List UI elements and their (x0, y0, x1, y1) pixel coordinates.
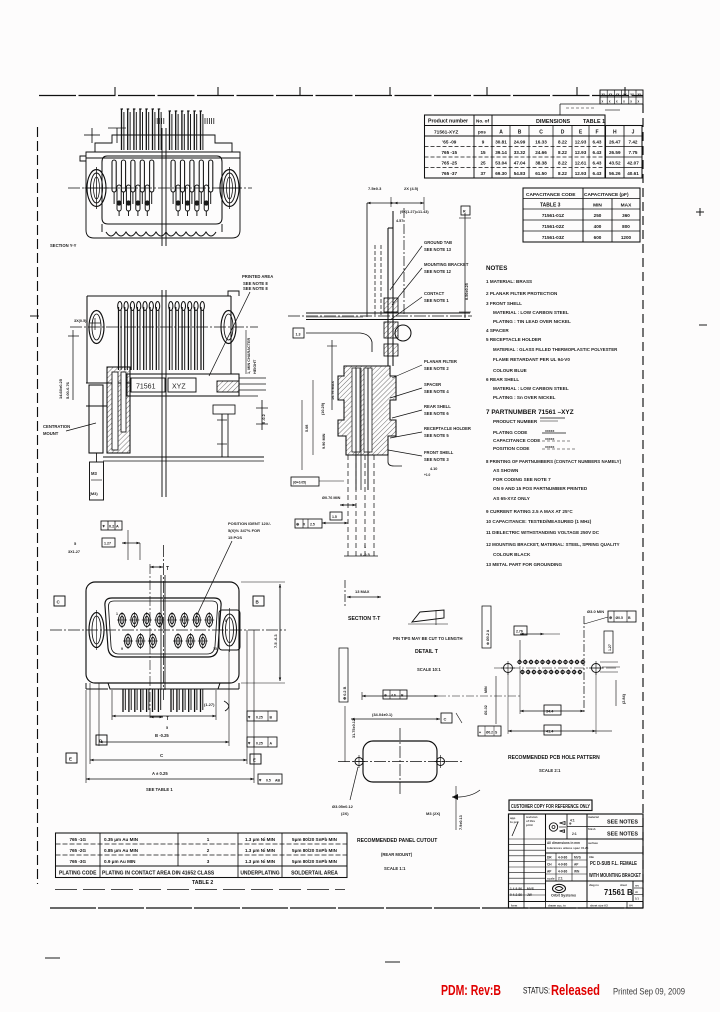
svg-text:MOUNT: MOUNT (43, 431, 59, 436)
svg-text:SEE NOTE 4: SEE NOTE 4 (424, 389, 449, 394)
svg-text:HEIGHT: HEIGHT (253, 359, 257, 374)
svg-text:Ø0.2: Ø0.2 (486, 731, 493, 735)
svg-text:2: 2 (207, 848, 210, 853)
svg-text:2.76: 2.76 (516, 630, 523, 634)
svg-text:26.47: 26.47 (609, 140, 621, 145)
svg-text:1200: 1200 (621, 235, 632, 240)
svg-text:CH: CH (547, 863, 552, 867)
svg-text:CAPACITANCE CODE: CAPACITANCE CODE (526, 192, 576, 198)
svg-text:9.90 MIN: 9.90 MIN (322, 433, 326, 449)
svg-text:E: E (579, 130, 583, 136)
svg-text:rev: rev (635, 884, 639, 888)
svg-text:12.61: 12.61 (575, 161, 587, 166)
svg-text:69.30: 69.30 (495, 171, 507, 176)
svg-text:33.32: 33.32 (514, 150, 526, 155)
svg-text:RECOMMENDED PCB HOLE PATTERN: RECOMMENDED PCB HOLE PATTERN (508, 755, 600, 761)
svg-text:scale: scale (547, 877, 555, 881)
svg-text:47.04: 47.04 (514, 161, 526, 166)
svg-text:xx: xx (602, 93, 606, 97)
svg-text:1, MIN CHARACTER: 1, MIN CHARACTER (247, 337, 251, 374)
svg-text:3X(0.5): 3X(0.5) (74, 319, 87, 323)
svg-text:PLATING : Sn OVER NICKEL: PLATING : Sn OVER NICKEL (493, 395, 556, 400)
svg-text:B: B (401, 694, 404, 698)
svg-text:10 CAPACITANCE: TESTED/MEASURE: 10 CAPACITANCE: TESTED/MEASURED (1 MHz) (486, 519, 592, 524)
svg-text:8 PRINTING OF PARTNUMBERS (CO: 8 PRINTING OF PARTNUMBERS (CONTACT NUMBE… (486, 459, 622, 464)
svg-text:41.4: 41.4 (546, 730, 554, 734)
svg-text:A ± 0.25: A ± 0.25 (152, 771, 168, 776)
svg-text:SEE NOTES: SEE NOTES (607, 832, 639, 838)
svg-text:0.9 μm Au MIN: 0.9 μm Au MIN (104, 859, 136, 864)
svg-text:4.10: 4.10 (430, 467, 437, 471)
svg-text:pos: pos (478, 130, 486, 135)
svg-text:61.50: 61.50 (535, 171, 547, 176)
svg-text:SPACER: SPACER (424, 382, 441, 387)
svg-text:COLOUR BLUE: COLOUR BLUE (493, 368, 527, 373)
svg-text:SECTION T-T: SECTION T-T (348, 616, 381, 622)
svg-text:SEE NOTE 8: SEE NOTE 8 (243, 281, 268, 286)
svg-text:All dimensions in mm: All dimensions in mm (547, 841, 580, 845)
svg-text:24.99: 24.99 (514, 140, 526, 145)
svg-text:A: A (116, 525, 119, 529)
svg-text:B: B (628, 616, 631, 620)
svg-text:sheet: sheet (620, 883, 627, 887)
svg-text:B: B (270, 716, 273, 720)
svg-text:1 MATERIAL: BRASS: 1 MATERIAL: BRASS (486, 279, 532, 284)
svg-text:SEE NOTES: SEE NOTES (607, 820, 639, 826)
svg-text:250: 250 (594, 213, 602, 218)
svg-text:xx: xx (609, 93, 613, 97)
svg-text:31.75±0.12: 31.75±0.12 (352, 719, 356, 738)
svg-text:FRONT SHELL: FRONT SHELL (424, 450, 454, 455)
svg-text:xx: xx (630, 93, 634, 97)
svg-text:(34.04±0.1): (34.04±0.1) (372, 712, 393, 717)
svg-text:6.43: 6.43 (593, 150, 602, 155)
svg-text:SCALE 1:1: SCALE 1:1 (384, 866, 406, 871)
svg-text:xxxxx: xxxxx (545, 437, 555, 441)
svg-text:sheet size A3: sheet size A3 (590, 904, 608, 908)
svg-text:RECOMMENDED PANEL CUTOUT: RECOMMENDED PANEL CUTOUT (357, 838, 437, 844)
svg-text:12.93: 12.93 (575, 171, 587, 176)
svg-text:5: 5 (74, 541, 77, 546)
svg-text:MATERIAL : GLASS FILLED THERMO: MATERIAL : GLASS FILLED THERMOPLASTIC PO… (493, 347, 618, 352)
svg-text:POSITION CODE: POSITION CODE (493, 446, 530, 451)
svg-text:0.85 μm Au MIN: 0.85 μm Au MIN (104, 848, 139, 853)
svg-text:x: x (616, 100, 618, 104)
svg-text:MVS: MVS (527, 887, 534, 891)
svg-text:⌖: ⌖ (258, 778, 262, 783)
svg-text:765 -2G: 765 -2G (69, 848, 86, 853)
svg-text:12.93: 12.93 (575, 140, 587, 145)
svg-text:4 SPACER: 4 SPACER (486, 328, 509, 333)
svg-text:CAPACITANCE (pF): CAPACITANCE (pF) (584, 192, 629, 198)
svg-text:M3 (2X): M3 (2X) (426, 811, 441, 816)
svg-text:A4: A4 (629, 904, 633, 908)
svg-text:13 MAX: 13 MAX (355, 589, 370, 594)
svg-text:1.27: 1.27 (608, 644, 612, 651)
svg-text:NOTES: NOTES (486, 265, 507, 272)
svg-text:B: B (518, 130, 522, 136)
svg-text:600: 600 (594, 235, 602, 240)
svg-text:6.43: 6.43 (593, 161, 602, 166)
svg-text:SEE NOTE 2: SEE NOTE 2 (424, 366, 449, 371)
svg-text:26.59: 26.59 (609, 150, 621, 155)
svg-text:13 METAL PART FOR GROUNDING: 13 METAL PART FOR GROUNDING (486, 562, 562, 567)
svg-text:5: 5 (166, 726, 168, 730)
svg-text:print: print (526, 823, 533, 827)
svg-text:C: C (57, 600, 61, 605)
svg-text:A: A (499, 130, 503, 136)
svg-text:MATERIAL : LOW CARBON STEEL: MATERIAL : LOW CARBON STEEL (493, 310, 569, 315)
svg-text:30.81: 30.81 (495, 140, 507, 145)
svg-text:14.60±0.25: 14.60±0.25 (58, 378, 63, 399)
svg-text:CAPACITANCE CODE: CAPACITANCE CODE (493, 438, 540, 443)
svg-text:Ø1.02: Ø1.02 (484, 705, 488, 715)
svg-text:x: x (630, 100, 632, 104)
svg-text:(1.27): (1.27) (204, 702, 215, 707)
svg-text:5μm 80/20 SnPb MIN: 5μm 80/20 SnPb MIN (292, 837, 338, 842)
svg-text:C: C (539, 130, 543, 136)
svg-text:1.3: 1.3 (296, 333, 301, 337)
svg-text:STATUS:: STATUS: (523, 986, 550, 996)
svg-text:drawn acc. to: drawn acc. to (548, 904, 566, 908)
svg-text:POSITION IDENT 12X/-: POSITION IDENT 12X/- (228, 521, 272, 526)
svg-text:0 4-2-86: 0 4-2-86 (510, 893, 522, 897)
svg-text:2 PLANAR FILTER PROTECTION: 2 PLANAR FILTER PROTECTION (486, 291, 558, 296)
svg-text:SEE NOTE 8: SEE NOTE 8 (243, 286, 268, 291)
svg-text:34.4: 34.4 (546, 710, 554, 714)
svg-text:AB: AB (275, 779, 281, 783)
svg-text:TABLE 2: TABLE 2 (192, 880, 213, 886)
svg-text:765 -1G: 765 -1G (69, 837, 86, 842)
svg-text:8.22: 8.22 (558, 161, 567, 166)
svg-text:UNDERPLATING: UNDERPLATING (240, 871, 279, 877)
svg-text:3 FRONT SHELL: 3 FRONT SHELL (486, 301, 522, 306)
svg-text:16.76 MAX: 16.76 MAX (331, 381, 335, 400)
svg-text:71561-02Z: 71561-02Z (542, 224, 564, 229)
svg-text:MVS: MVS (574, 856, 581, 860)
svg-text:T: T (166, 716, 169, 722)
svg-text:9: 9 (121, 647, 123, 651)
svg-text:765 -25: 765 -25 (441, 161, 457, 166)
svg-text:F: F (595, 130, 598, 136)
svg-text:15: 15 (213, 647, 217, 651)
svg-text:SEE NOTE 3: SEE NOTE 3 (424, 457, 449, 462)
svg-text:+1.0: +1.0 (424, 473, 431, 477)
svg-text:xx: xx (638, 93, 642, 97)
svg-text:7 PARTNUMBER 71561 –XYZ: 7 PARTNUMBER 71561 –XYZ (486, 409, 574, 416)
svg-text:material: material (588, 815, 599, 819)
svg-text:1 4-9-86: 1 4-9-86 (510, 887, 522, 891)
svg-text:0 -0.5: 0 -0.5 (360, 553, 370, 557)
svg-text:REAR SHELL: REAR SHELL (424, 404, 451, 409)
svg-text:PLATING CODE: PLATING CODE (493, 430, 527, 435)
svg-text:finish: finish (588, 827, 596, 831)
svg-text:2.5: 2.5 (310, 523, 315, 527)
svg-text:Ø0.5: Ø0.5 (616, 616, 623, 620)
svg-text:11 DIELECTRIC WITHSTANDING VOL: 11 DIELECTRIC WITHSTANDING VOLTAGE 250V … (486, 530, 600, 535)
svg-text:WN: WN (574, 870, 580, 874)
svg-text:⊕ Ø0.2 A: ⊕ Ø0.2 A (486, 629, 490, 645)
svg-text:PLATING : TIN LEAD OVER NIC: PLATING : TIN LEAD OVER NICKEL (493, 319, 571, 324)
svg-text:(M3): (M3) (90, 491, 99, 496)
svg-text:4-9-86: 4-9-86 (558, 863, 567, 867)
svg-text:E: E (69, 757, 72, 762)
svg-text:0.2: 0.2 (109, 525, 114, 529)
svg-text:SOLDERTAIL AREA: SOLDERTAIL AREA (291, 871, 338, 877)
svg-text:1.3 μm Ni MIN: 1.3 μm Ni MIN (245, 859, 276, 864)
svg-text:4.57: 4.57 (396, 219, 403, 223)
svg-text:C: C (444, 717, 447, 722)
svg-text:43.52: 43.52 (609, 161, 621, 166)
svg-text:12.93: 12.93 (575, 150, 587, 155)
svg-text:x: x (623, 100, 625, 104)
svg-text:9 CURRENT RATING 2.5 A MAX AT: 9 CURRENT RATING 2.5 A MAX AT 25°C (486, 509, 573, 514)
svg-text:MATERIAL : LOW CARBON STEEL: MATERIAL : LOW CARBON STEEL (493, 386, 569, 391)
svg-text:39.14: 39.14 (495, 150, 507, 155)
svg-text:xxxxx: xxxxx (545, 445, 555, 449)
svg-text:6.43: 6.43 (593, 171, 602, 176)
svg-text:SECTION Y-Y: SECTION Y-Y (50, 243, 77, 248)
svg-text:'65 -09: '65 -09 (442, 140, 457, 145)
svg-text:765 -3G: 765 -3G (69, 859, 86, 864)
svg-text:WITH MOUNTING BRACKET: WITH MOUNTING BRACKET (589, 873, 642, 879)
svg-text:(2.84): (2.84) (622, 693, 626, 704)
svg-text:⌖: ⌖ (102, 524, 106, 529)
svg-text:XYZ: XYZ (172, 384, 186, 391)
svg-text:form: form (511, 904, 518, 908)
svg-text:TABLE 1: TABLE 1 (583, 119, 605, 125)
svg-text:0.35 μm Au MIN: 0.35 μm Au MIN (104, 837, 139, 842)
svg-text:1: 1 (207, 837, 210, 842)
svg-text:71561-XYZ: 71561-XYZ (434, 130, 458, 136)
svg-text:(REAR MOUNT): (REAR MOUNT) (381, 852, 413, 857)
svg-text:CONTACT: CONTACT (424, 291, 445, 296)
svg-text:CUSTOMER COPY FOR REFERENCE ON: CUSTOMER COPY FOR REFERENCE ONLY (511, 804, 591, 810)
svg-text:GROUND TAB: GROUND TAB (424, 240, 452, 245)
svg-text:765 -15: 765 -15 (441, 150, 457, 155)
svg-text:M3: M3 (91, 471, 97, 476)
svg-text:to prd: to prd (510, 820, 519, 824)
svg-text:⊕: ⊕ (609, 616, 613, 620)
svg-text:54.83: 54.83 (514, 171, 526, 176)
svg-text:PLANAR FILTER: PLANAR FILTER (424, 359, 457, 364)
svg-text:AS SHOWN: AS SHOWN (493, 468, 519, 473)
svg-text:4-9-86: 4-9-86 (558, 870, 567, 874)
svg-text:1.3 μm Ni MIN: 1.3 μm Ni MIN (245, 837, 276, 842)
svg-text:8 -0.2: 8 -0.2 (262, 414, 266, 424)
svg-text:7.42: 7.42 (629, 140, 638, 145)
svg-text:800: 800 (622, 224, 630, 229)
svg-text:5(X)% 347% FOR: 5(X)% 347% FOR (228, 528, 260, 533)
svg-text:FLAME RETARDANT PER UL 94-V0: FLAME RETARDANT PER UL 94-V0 (493, 357, 570, 362)
svg-text:7.75: 7.75 (629, 150, 638, 155)
svg-text:JW: JW (527, 893, 532, 897)
svg-text:J: J (632, 130, 635, 136)
svg-text:sh: sh (635, 890, 638, 894)
svg-text:Ø3.0 MIN: Ø3.0 MIN (587, 609, 604, 614)
svg-text:765 -37: 765 -37 (441, 171, 457, 176)
svg-text:surface: surface (588, 841, 598, 845)
svg-text:⌖: ⌖ (478, 731, 482, 735)
svg-text:B: B (256, 600, 260, 605)
svg-text:⌖: ⌖ (247, 741, 251, 746)
svg-text:xxxxx: xxxxx (545, 429, 555, 433)
svg-text:2X (4.5): 2X (4.5) (404, 186, 419, 191)
svg-text:(Ø+0.05): (Ø+0.05) (293, 481, 306, 485)
svg-text:6 REAR SHELL: 6 REAR SHELL (486, 377, 519, 382)
svg-text:16.33: 16.33 (535, 140, 547, 145)
svg-text:400: 400 (594, 224, 602, 229)
svg-text:⊕: ⊕ (296, 523, 300, 527)
svg-text:1: 1 (364, 545, 366, 549)
svg-text:8.22: 8.22 (558, 140, 567, 145)
svg-text:tolerances unless spec ±0.25: tolerances unless spec ±0.25 (547, 846, 589, 850)
svg-text:53.04: 53.04 (495, 161, 507, 166)
svg-text:7.5±0.3: 7.5±0.3 (368, 186, 382, 191)
svg-text:42.07: 42.07 (627, 161, 639, 166)
svg-text:dwg no: dwg no (589, 883, 599, 887)
svg-text:40.61: 40.61 (627, 171, 639, 176)
svg-text:6.43: 6.43 (593, 140, 602, 145)
svg-text:15: 15 (480, 150, 486, 155)
svg-text:x: x (602, 100, 604, 104)
svg-text:title: title (589, 855, 594, 859)
svg-text:4-9-86: 4-9-86 (558, 856, 567, 860)
svg-text:T: T (166, 566, 169, 572)
svg-text:Ø0.76 MIN: Ø0.76 MIN (322, 496, 341, 500)
svg-text:Ø3.05±0.12: Ø3.05±0.12 (332, 804, 354, 809)
svg-text:SEE NOTE 6: SEE NOTE 6 (424, 411, 449, 416)
svg-text:5μm 80/20 SnPb MIN: 5μm 80/20 SnPb MIN (292, 859, 338, 864)
svg-text:xx: xx (616, 93, 620, 97)
svg-text:71561: 71561 (136, 384, 156, 391)
svg-text:DETAIL T: DETAIL T (415, 649, 439, 655)
svg-text:71561: 71561 (604, 888, 626, 897)
svg-text:MIN: MIN (593, 203, 602, 209)
svg-text:1/1: 1/1 (635, 897, 639, 901)
svg-text:x: x (609, 100, 611, 104)
svg-text:ON 9 AND 15 POS PARTNUMBER PRI: ON 9 AND 15 POS PARTNUMBER PRINTED (493, 486, 588, 491)
svg-text:25: 25 (480, 161, 486, 166)
svg-text:5.00-0.76: 5.00-0.76 (65, 381, 70, 399)
svg-text:⊕ 0.2 B: ⊕ 0.2 B (343, 686, 347, 700)
svg-text:⊕: ⊕ (569, 822, 572, 826)
svg-text:7.5 -0.3: 7.5 -0.3 (273, 634, 278, 648)
svg-text:X: X (303, 523, 306, 527)
svg-text:PLATING CODE: PLATING CODE (59, 871, 97, 877)
svg-text:56.26: 56.26 (609, 171, 621, 176)
svg-text:B -0.25: B -0.25 (155, 733, 169, 738)
svg-text:E: E (253, 758, 256, 763)
svg-text:PIN TIPS MAY BE CUT TO LENGTH: PIN TIPS MAY BE CUT TO LENGTH (393, 636, 463, 641)
svg-text:24.66: 24.66 (535, 150, 547, 155)
svg-text:Printed Sep 09, 2009: Printed Sep 09, 2009 (613, 987, 685, 998)
svg-text:SEE NOTE 1: SEE NOTE 1 (424, 298, 449, 303)
svg-text:MOUNTING BRACKET: MOUNTING BRACKET (424, 262, 469, 267)
svg-text:5μm 80/20 SnPb MIN: 5μm 80/20 SnPb MIN (292, 848, 338, 853)
svg-text:SCALE 2:1: SCALE 2:1 (539, 768, 561, 773)
svg-text:RECEPTACLE HOLDER: RECEPTACLE HOLDER (424, 426, 471, 431)
svg-text:SEE NOTE 5: SEE NOTE 5 (424, 433, 449, 438)
svg-text:0.5: 0.5 (266, 779, 271, 783)
svg-text:PRINTED AREA: PRINTED AREA (242, 274, 273, 279)
svg-text:2:1: 2:1 (572, 832, 577, 836)
svg-text:AS 65-XYZ ONLY: AS 65-XYZ ONLY (493, 496, 530, 501)
svg-text:4.6: 4.6 (391, 694, 396, 698)
svg-text:(9X(1.27)=11.43): (9X(1.27)=11.43) (400, 210, 429, 214)
svg-text:SEE NOTE 12: SEE NOTE 12 (424, 269, 452, 274)
svg-text:CENTRATION: CENTRATION (43, 424, 70, 429)
svg-text:Orbit Systems: Orbit Systems (551, 894, 576, 898)
svg-text:COLOUR BLACK: COLOUR BLACK (493, 552, 531, 557)
svg-text:(10.29): (10.29) (321, 402, 325, 415)
svg-text:PDM: Rev:B: PDM: Rev:B (441, 982, 501, 999)
svg-text:15 POS: 15 POS (228, 535, 242, 540)
svg-text:1.5: 1.5 (332, 515, 337, 519)
svg-text:0.25: 0.25 (256, 716, 263, 720)
svg-text:MIN: MIN (484, 686, 488, 693)
svg-text:R: R (463, 210, 466, 214)
svg-text:PC D-SUB F.L. FEMALE: PC D-SUB F.L. FEMALE (590, 861, 637, 867)
svg-text:5.08: 5.08 (305, 425, 309, 432)
svg-text:SCALE 10:1: SCALE 10:1 (417, 667, 441, 672)
svg-text:38.38: 38.38 (535, 161, 547, 166)
svg-text:3X1.27: 3X1.27 (68, 550, 80, 554)
svg-text:MAX: MAX (621, 203, 632, 209)
svg-text:360: 360 (622, 213, 630, 218)
svg-text:AP: AP (547, 870, 552, 874)
svg-text:PRODUCT NUMBER: PRODUCT NUMBER (493, 419, 538, 424)
svg-text:1.27: 1.27 (104, 542, 111, 546)
svg-text:Product number: Product number (428, 119, 468, 125)
svg-text:DR: DR (547, 856, 552, 860)
svg-text:FOR CODING SEE NOTE 7: FOR CODING SEE NOTE 7 (493, 477, 551, 482)
svg-text:PLATING IN CONTACT AREA DIN 4: PLATING IN CONTACT AREA DIN 41652 CLASS (102, 871, 215, 877)
svg-text:SEE NOTE 13: SEE NOTE 13 (424, 247, 452, 252)
svg-text:3: 3 (207, 859, 210, 864)
svg-text:7.9±0.13: 7.9±0.13 (459, 815, 463, 830)
svg-text:AP: AP (574, 863, 579, 867)
svg-text:(2X): (2X) (341, 811, 349, 816)
svg-text:37: 37 (480, 171, 486, 176)
svg-text:D: D (561, 130, 565, 136)
svg-text:TABLE 3: TABLE 3 (540, 203, 561, 209)
svg-text:B: B (627, 888, 633, 897)
svg-text:12 MOUNTING BRACKET, MATERIAL:: 12 MOUNTING BRACKET, MATERIAL: STEEL, SP… (486, 542, 620, 547)
svg-text:Released: Released (551, 982, 600, 999)
svg-text:71561-03Z: 71561-03Z (542, 235, 564, 240)
svg-text:1: 1 (116, 612, 118, 616)
svg-text:8.50±0.25: 8.50±0.25 (465, 283, 469, 300)
svg-text:1.3 μm Ni MIN: 1.3 μm Ni MIN (245, 848, 276, 853)
svg-text:0.25: 0.25 (256, 742, 263, 746)
svg-text:xx: xx (623, 93, 627, 97)
svg-text:C: C (160, 753, 164, 758)
svg-text:H: H (613, 130, 617, 136)
svg-text:5 RECEPTACLE HOLDER: 5 RECEPTACLE HOLDER (486, 337, 542, 342)
svg-text:A: A (270, 742, 273, 746)
svg-text:9: 9 (482, 140, 485, 145)
svg-text:⌖: ⌖ (247, 715, 251, 720)
svg-text:8.22: 8.22 (558, 150, 567, 155)
svg-text:x: x (638, 100, 640, 104)
svg-text:71561-01Z: 71561-01Z (542, 213, 564, 218)
svg-text:No. of: No. of (476, 119, 489, 124)
svg-text:2:1: 2:1 (558, 877, 563, 881)
svg-text:DIMENSIONS: DIMENSIONS (536, 119, 571, 125)
svg-text:S: S (495, 731, 498, 735)
svg-text:SEE TABLE 1: SEE TABLE 1 (146, 787, 173, 792)
